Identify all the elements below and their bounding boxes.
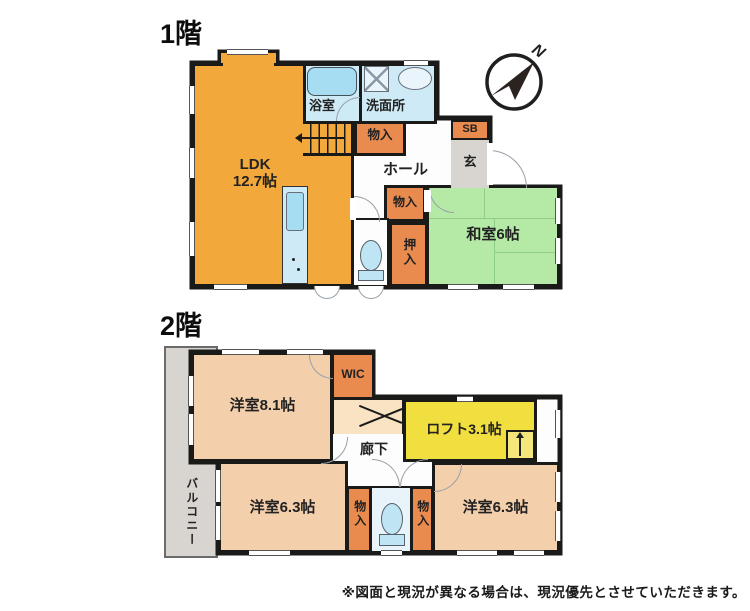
window-mark: [215, 506, 221, 540]
hall-door-arc: [354, 196, 380, 222]
stove-knob-icon: [292, 258, 295, 261]
oshiire-label: 押入: [401, 238, 415, 267]
window-mark: [448, 284, 478, 290]
bathtub-icon: [307, 67, 357, 96]
window-mark: [215, 470, 221, 502]
closet-2f-right-label: 物入: [415, 500, 429, 528]
bedroom-81-label: 洋室8.1帖: [205, 397, 320, 414]
sink-icon: [398, 67, 432, 90]
hall-door-gap: [350, 198, 356, 220]
bedroom-63-right-label: 洋室6.3帖: [438, 499, 553, 516]
wic-label: WIC: [331, 368, 375, 382]
washitsu-label: 和室6帖: [455, 226, 531, 243]
disclaimer-text: ※図面と現況が異なる場合は、現況優先とさせていただきます。: [0, 581, 746, 601]
window-mark: [227, 49, 268, 55]
closet-1f-upper-label: 物入: [354, 128, 406, 142]
window-mark: [381, 550, 402, 556]
window-mark: [189, 86, 195, 114]
toilet-base-icon-1f: [358, 270, 384, 281]
corridor-double-door-arc: [400, 459, 428, 487]
toilet-icon-1f: [360, 240, 382, 271]
stairs-1f: [303, 121, 354, 156]
corridor-double-door-arc: [372, 459, 400, 487]
entrance-door-arc: [489, 150, 527, 188]
entrance-label: 玄: [451, 155, 489, 170]
ldk-size: 12.7帖: [233, 173, 277, 190]
window-mark: [222, 349, 259, 355]
stairs-2f: [331, 397, 405, 434]
window-mark: [555, 511, 561, 541]
floor2-title: 2階: [160, 304, 202, 343]
toilet-icon-2f: [381, 503, 403, 535]
stairs-1f-arrow-line: [300, 137, 344, 139]
rear-door-arc: [314, 286, 340, 299]
window-mark: [249, 550, 290, 556]
compass-icon: N: [478, 34, 554, 118]
hall-label: ホール: [383, 161, 428, 178]
window-mark: [214, 284, 247, 290]
tatami-line: [494, 252, 557, 253]
window-mark: [555, 472, 561, 502]
window-mark: [457, 550, 497, 556]
window-mark: [189, 148, 195, 178]
loft-ladder-arrow-line: [519, 436, 521, 456]
window-mark: [555, 410, 561, 438]
corridor-label: 廊下: [360, 441, 388, 457]
floor1-title: 1階: [160, 12, 202, 51]
toilet-base-icon-2f: [379, 534, 405, 546]
floorplan-canvas: 1階 2階 N: [0, 0, 750, 611]
window-mark: [188, 414, 194, 445]
ldk-label: LDK 12.7帖: [200, 156, 310, 191]
window-mark: [457, 396, 473, 402]
washroom-label: 洗面所: [366, 99, 405, 114]
tatami-line: [484, 188, 485, 218]
stove-knob-icon: [297, 268, 300, 271]
window-mark: [404, 60, 428, 66]
stairs-1f-arrow-head: [295, 133, 302, 143]
window-mark: [555, 198, 561, 224]
tatami-line: [429, 218, 557, 219]
bathroom-label: 浴室: [309, 99, 335, 114]
closet-1f-middle-label: 物入: [384, 196, 426, 210]
rear-door-arc: [358, 286, 384, 299]
window-mark: [287, 349, 323, 355]
washing-machine-icon: [364, 66, 389, 92]
ldk-bay-join: [223, 60, 274, 69]
window-mark: [188, 376, 194, 406]
kitchen-sink-icon: [286, 192, 304, 231]
window-mark: [555, 238, 561, 264]
ldk-name: LDK: [240, 156, 271, 173]
shoe-box-label: SB: [451, 123, 489, 136]
closet-2f-left-label: 物入: [352, 500, 366, 528]
window-mark: [514, 550, 544, 556]
window-mark: [503, 284, 534, 290]
bedroom-63-left-label: 洋室6.3帖: [225, 499, 340, 516]
loft-label: ロフト3.1帖: [408, 421, 520, 437]
compass-north-label: N: [529, 41, 549, 62]
compass-needle: [491, 62, 534, 100]
window-mark: [189, 222, 195, 256]
corridor-left-door-arc: [321, 437, 348, 464]
balcony-label: バルコニー: [184, 477, 198, 547]
